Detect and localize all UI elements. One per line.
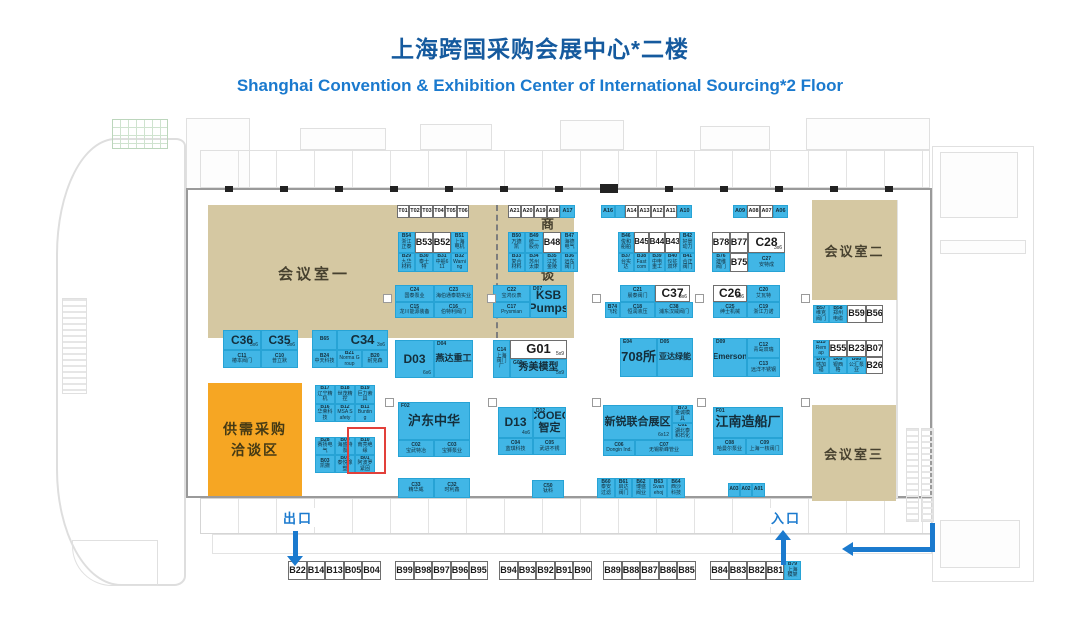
- booth-b99: B99: [395, 561, 414, 580]
- booth-b58: B58郑州电缆: [829, 305, 847, 323]
- pillar: [488, 398, 497, 407]
- booth-b47: B47海德电气: [561, 232, 578, 253]
- booth-b31: B31中船611: [433, 253, 451, 272]
- booth-c17: C17Prysmian: [493, 302, 530, 318]
- booth-c19: C19浙江力诺: [747, 302, 780, 318]
- booth-b74: B74飞轮: [605, 302, 620, 318]
- escalator: [906, 428, 919, 522]
- page-subtitle: Shanghai Convention & Exhibition Center …: [0, 76, 1080, 96]
- booth-c04: C04蓝琪科技: [498, 438, 533, 455]
- booth-c28: C283x6: [748, 232, 785, 253]
- booth-c21: C21晨泰阀门: [620, 285, 655, 302]
- booth-t02: T02: [409, 205, 421, 218]
- booth-c32: C32时利鑫: [434, 478, 470, 498]
- booth-b85: B85: [677, 561, 696, 580]
- booth-b40: B40仪征双环: [665, 253, 680, 272]
- pillar: [385, 398, 394, 407]
- booth-b05: B05: [344, 561, 362, 580]
- booth-b44: B44: [649, 232, 665, 253]
- wall-tick: [830, 186, 838, 192]
- booth-b18: B18世茂精控: [335, 385, 355, 404]
- booth-b19: B19巨力索具: [355, 385, 375, 404]
- wall-tick: [555, 186, 563, 192]
- booth-b79: B79上海模架: [784, 561, 801, 580]
- booth-b35: B35江苏金陵: [543, 253, 561, 272]
- booth-c34: C343x6: [337, 330, 388, 350]
- booth-c02: C02宝武特冶: [398, 440, 434, 457]
- booth-b68: B68公汇泵业: [847, 357, 866, 374]
- booth-b43: B43: [665, 232, 680, 253]
- booth-b86: B86: [659, 561, 677, 580]
- booth-c38: C38浦东汉威阀门: [655, 302, 693, 318]
- entrance-arrow-icon: [781, 540, 786, 565]
- booth-b36: B36远东阀门: [561, 253, 578, 272]
- booth-d05: D05亚达绿能: [657, 338, 693, 377]
- booth-a21: A21: [508, 205, 521, 218]
- wall-tick: [600, 184, 618, 193]
- booth-c15: C15龙川能源装备: [395, 302, 434, 318]
- booth-e04: E04708所: [620, 338, 657, 377]
- booth-t03: T03: [421, 205, 433, 218]
- booth-a10: A10: [677, 205, 692, 218]
- booth-c03: C03宝狮泵业: [434, 440, 470, 457]
- booth-b78: B78: [712, 232, 730, 253]
- booth-a16: A16: [601, 205, 615, 218]
- booth-b51: B51上海电机: [451, 232, 468, 253]
- booth-unit: [615, 205, 625, 218]
- booth-a03: A03: [728, 483, 740, 497]
- meeting-room-3-label: 会议室三: [824, 444, 884, 463]
- meeting-room-1-label: 会议室一: [278, 263, 350, 284]
- wall-tick: [280, 186, 288, 192]
- booth-b64: B64西沙科技: [667, 478, 685, 498]
- booth-c22: C22宝鸿仪表: [493, 285, 530, 302]
- wall-tick: [335, 186, 343, 192]
- booth-b33: B33复合材料: [508, 253, 525, 272]
- booth-b52: B52: [433, 232, 451, 253]
- booth-b12: B12MSA Safety: [335, 404, 355, 422]
- booth-a14: A14: [625, 205, 638, 218]
- booth-b75: B75: [730, 253, 748, 272]
- pillar: [695, 294, 704, 303]
- wall-tick: [500, 186, 508, 192]
- booth-b76: B76建维阀门: [712, 253, 730, 272]
- booth-c18: C18恒润液压: [620, 302, 655, 318]
- booth-c23: C23海伯通泰勒实业: [434, 285, 473, 302]
- zone-divider: [496, 205, 498, 338]
- booth-b65: B65: [312, 330, 337, 350]
- booth-c11: C11椿本阀门: [223, 350, 261, 368]
- booth-b89: B89: [603, 561, 622, 580]
- booth-b20: B20耐克森: [362, 350, 388, 368]
- route-arrowhead-icon: [842, 542, 853, 556]
- booth-a18: A18: [547, 205, 560, 218]
- booth-d03: D036x6: [395, 340, 434, 378]
- booth-b03: B03凯撒: [315, 455, 335, 473]
- booth-c14: C14上海阀门厂: [493, 340, 510, 378]
- supply-zone-label: 供需采购洽谈区: [223, 419, 287, 461]
- booth-g02: G02秀美模型5x9: [510, 359, 567, 378]
- booth-a09: A09: [733, 205, 747, 218]
- wall-tick: [665, 186, 673, 192]
- booth-b26: B26: [866, 357, 883, 374]
- wall-tick: [445, 186, 453, 192]
- booth-b32: B32Warning: [451, 253, 468, 272]
- booth-c09: C09上海一核阀门: [746, 438, 783, 455]
- top-rooms-band: [200, 150, 930, 188]
- booth-b24: B24中天科技: [312, 350, 337, 368]
- booth-b93: B93: [518, 561, 536, 580]
- booth-c35: C353x6: [261, 330, 298, 350]
- booth-b23: B23: [847, 340, 866, 357]
- booth-c08: C08哈曼尔泵业: [713, 438, 746, 455]
- booth-b70: B70感加福: [813, 357, 829, 374]
- building-bottom-edge: [212, 534, 932, 554]
- booth-b92: B92: [536, 561, 555, 580]
- booth-b57: B57维克阀门: [813, 305, 829, 323]
- escalator: [921, 428, 934, 522]
- wall-tick: [775, 186, 783, 192]
- booth-b39: B39中电重工: [649, 253, 665, 272]
- top-room: [806, 118, 930, 150]
- booth-b04: B04: [362, 561, 381, 580]
- booth-a12: A12: [651, 205, 664, 218]
- booth-c01: C01湖北泰和石化: [672, 423, 693, 440]
- booth-b16: B16华荣科技: [315, 404, 335, 422]
- top-room: [300, 128, 386, 150]
- top-room: [700, 126, 770, 150]
- booth-b15: B15Remap: [813, 340, 829, 357]
- booth-t04: T04: [433, 205, 445, 218]
- meeting-room-2: 会议室二: [812, 200, 897, 300]
- booth-b48: B48: [543, 232, 561, 253]
- booth-c36: C363x6: [223, 330, 261, 350]
- exit-arrow-icon: [293, 531, 298, 556]
- booth-b98: B98: [414, 561, 432, 580]
- booth-t05: T05: [445, 205, 457, 218]
- booth-t01: T01: [397, 205, 409, 218]
- booth-b38: B38Fastcom: [634, 253, 649, 272]
- entrance-arrowhead-icon: [775, 530, 791, 540]
- booth-c12: C12青岛双瑞: [747, 338, 780, 358]
- exit-arrowhead-icon: [287, 556, 303, 566]
- booth-新锐联合展区: 新锐联合展区6x12: [603, 405, 672, 440]
- booth-c07: C07无锡新峰管业: [635, 440, 693, 456]
- entrance-label: 入口: [769, 508, 803, 527]
- booth-b07: B07: [866, 340, 883, 357]
- booth-b91: B91: [555, 561, 573, 580]
- booth-f02: F02沪东中华: [398, 402, 470, 440]
- booth-b61: B61启达阀门: [615, 478, 632, 498]
- booth-d13: D134x6: [498, 407, 533, 438]
- booth-a13: A13: [638, 205, 651, 218]
- booth-b90: B90: [573, 561, 592, 580]
- booth-b46: B46俊和船舶: [618, 232, 634, 253]
- booth-b53: B53: [415, 232, 433, 253]
- booth-b37: B37台实达: [618, 253, 634, 272]
- booth-a11: A11: [664, 205, 677, 218]
- booth-b50: B50万德凯: [508, 232, 525, 253]
- booth-b45: B45: [634, 232, 649, 253]
- top-room: [560, 120, 624, 150]
- booth-c37: C373x6: [655, 285, 690, 302]
- booth-b87: B87: [640, 561, 659, 580]
- floor-plan: 上海跨国采购会展中心*二楼 Shanghai Convention & Exhi…: [0, 0, 1080, 631]
- booth-b97: B97: [432, 561, 451, 580]
- booth-a02: A02: [740, 483, 752, 497]
- booth-f01: F01江南造船厂: [713, 407, 783, 438]
- exit-label: 出口: [281, 508, 315, 527]
- booth-a17: A17: [560, 205, 575, 218]
- booth-b59: B59: [847, 305, 866, 323]
- booth-a07: A07: [760, 205, 773, 218]
- booth-b84: B84: [710, 561, 729, 580]
- booth-c26: C263x6: [713, 285, 747, 302]
- booth-b62: B62博盛阀业: [632, 478, 650, 498]
- booth-a08: A08: [747, 205, 760, 218]
- top-room: [420, 124, 492, 150]
- booth-b14: B14: [307, 561, 325, 580]
- roof-garden-grid: [112, 119, 168, 149]
- booth-b95: B95: [469, 561, 488, 580]
- pillar: [592, 294, 601, 303]
- meeting-room-3: 会议室三: [812, 405, 896, 501]
- booth-c05: C05武进不锈: [533, 438, 566, 455]
- stairs: [62, 298, 87, 394]
- booth-a20: A20: [521, 205, 534, 218]
- booth-d07: D07KSBPumps: [530, 285, 567, 318]
- pillar: [487, 294, 496, 303]
- booth-b29: B29九华材料: [398, 253, 415, 272]
- pillar: [697, 398, 706, 407]
- pillar: [383, 294, 392, 303]
- booth-b13: B13: [325, 561, 344, 580]
- booth-g01: G015x9: [510, 340, 567, 359]
- wall-tick: [390, 186, 398, 192]
- wall-tick: [885, 186, 893, 192]
- supply-zone: 供需采购洽谈区: [208, 383, 302, 496]
- booth-d12: D12COOEC智定: [533, 407, 566, 438]
- booth-c24: C24国泰泵业: [395, 285, 434, 302]
- right-corridor: [940, 240, 1026, 254]
- booth-b96: B96: [451, 561, 469, 580]
- booth-b94: B94: [499, 561, 518, 580]
- booth-b56: B56: [866, 305, 883, 323]
- booth-b34: B34苏州太康: [525, 253, 543, 272]
- booth-c33: C33精华威: [398, 478, 434, 498]
- booth-c27: C27安特成: [748, 253, 785, 272]
- booth-b82: B82: [747, 561, 766, 580]
- terrace-lower: [72, 540, 158, 586]
- booth-b60: B60泰安过滤: [597, 478, 615, 498]
- booth-b55: B55: [829, 340, 847, 357]
- booth-b54: B54浙江正泰: [398, 232, 415, 253]
- booth-t06: T06: [457, 205, 469, 218]
- booth-c13: C13远洋不锈钢: [747, 358, 780, 377]
- booth-a01: A01: [752, 483, 765, 497]
- right-rooms-lower: [940, 520, 1020, 568]
- booth-b42: B42好景动力: [680, 232, 695, 253]
- booth-b28: B28赛扬电气: [315, 437, 335, 455]
- pillar: [801, 294, 810, 303]
- meeting-room-2-label: 会议室二: [824, 241, 884, 260]
- booth-c06: C06Dongin Ind.: [603, 440, 635, 456]
- booth-b73: B73金诚模具: [672, 405, 693, 423]
- booth-a06: A06: [773, 205, 788, 218]
- right-rooms: [940, 152, 1018, 218]
- route-arrow-horizontal: [852, 547, 935, 552]
- booth-b77: B77: [730, 232, 748, 253]
- booth-c10: C10普立默: [261, 350, 298, 368]
- booth-b63: B63Svanehoj: [650, 478, 667, 498]
- booth-b41: B41合正阀门: [680, 253, 695, 272]
- booth-b69: B69银西格: [829, 357, 847, 374]
- pillar: [801, 398, 810, 407]
- booth-b88: B88: [622, 561, 640, 580]
- booth-b21: B21Norma Group: [337, 350, 362, 368]
- booth-a19: A19: [534, 205, 547, 218]
- booth-b83: B83: [729, 561, 747, 580]
- booth-d09: D09Emerson: [713, 338, 747, 377]
- page-title: 上海跨国采购会展中心*二楼: [0, 30, 1080, 64]
- booth-c25: C25绅士机械: [713, 302, 747, 318]
- booth-b17: B17辽宁精机: [315, 385, 335, 404]
- booth-c16: C16伯特利阀门: [434, 302, 473, 318]
- booth-c50: C50钛科: [532, 480, 564, 498]
- booth-c20: C20艾瓦特: [747, 285, 780, 302]
- highlight-rectangle: [347, 427, 386, 474]
- booth-b30: B30泰士特: [415, 253, 433, 272]
- pillar: [592, 398, 601, 407]
- wall-tick: [720, 186, 728, 192]
- wall-tick: [225, 186, 233, 192]
- booth-b11: B11Bunting: [355, 404, 375, 422]
- booth-b49: B49统一股份: [525, 232, 543, 253]
- booth-d04: D04燕达重工: [434, 340, 473, 378]
